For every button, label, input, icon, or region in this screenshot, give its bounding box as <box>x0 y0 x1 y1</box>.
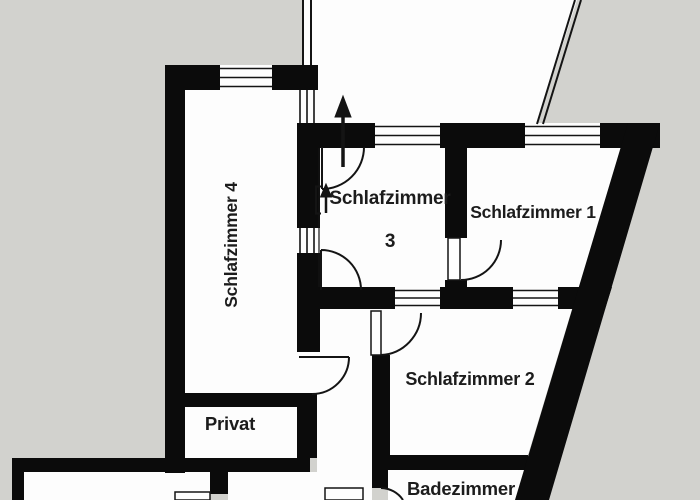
door-gap <box>297 352 317 393</box>
room-label-badezimmer: Badezimmer <box>407 478 515 499</box>
room-label-schlafzimmer-1: Schlafzimmer 1 <box>470 202 596 222</box>
room-label-schlafzimmer-4: Schlafzimmer 4 <box>221 182 241 308</box>
room-schlafzimmer-3 <box>317 145 445 287</box>
floorplan-page: Schlafzimmer 3 Schlafzimmer 1 Schlafzimm… <box>0 0 700 500</box>
room-label-privat: Privat <box>205 413 255 434</box>
room-bottom-left <box>22 472 210 500</box>
room-label-schlafzimmer-3-number: 3 <box>385 231 395 252</box>
room-schlafzimmer-4 <box>185 90 297 393</box>
room-label-schlafzimmer-2: Schlafzimmer 2 <box>405 369 534 389</box>
balcony-area <box>312 0 577 125</box>
floorplan-canvas: Schlafzimmer 3 Schlafzimmer 1 Schlafzimm… <box>0 0 700 500</box>
room-below-privat <box>228 472 317 500</box>
room-label-schlafzimmer-3: Schlafzimmer <box>329 188 451 209</box>
room-hallway <box>317 309 372 500</box>
